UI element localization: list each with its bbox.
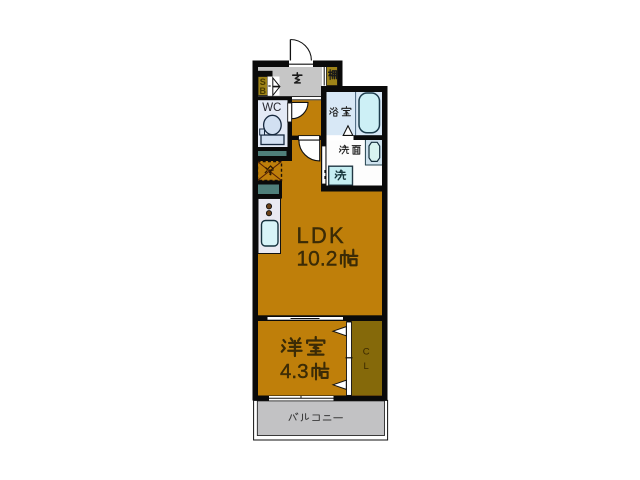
svg-text:10.2: 10.2 xyxy=(297,247,338,270)
svg-text:B: B xyxy=(260,86,267,96)
svg-text:WC: WC xyxy=(262,102,281,114)
svg-text:L: L xyxy=(364,361,369,372)
svg-text:LDK: LDK xyxy=(297,223,346,248)
svg-text:4.3: 4.3 xyxy=(280,360,309,383)
svg-text:C: C xyxy=(363,347,370,358)
